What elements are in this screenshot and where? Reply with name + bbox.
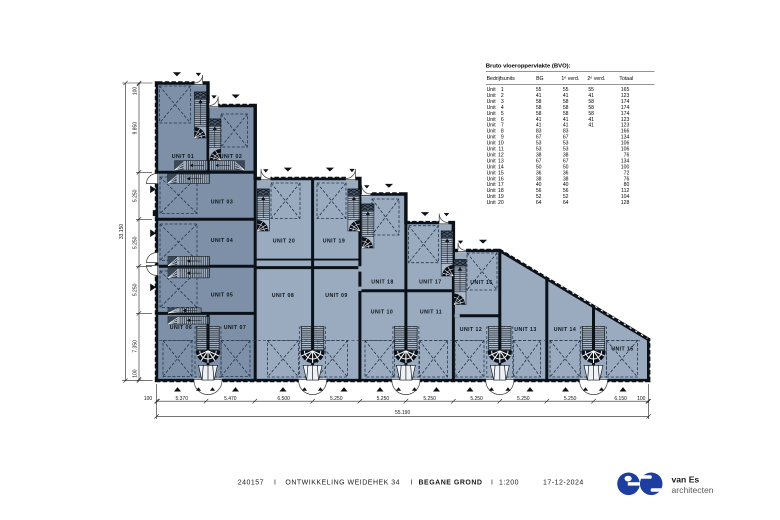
svg-text:100: 100 [637, 396, 646, 402]
svg-text:UNIT 01: UNIT 01 [172, 154, 194, 160]
svg-text:I: I [274, 479, 276, 486]
svg-text:Bruto vloeroppervlakte (BVO):: Bruto vloeroppervlakte (BVO): [486, 64, 571, 70]
svg-text:UNIT 19: UNIT 19 [323, 239, 345, 245]
svg-text:UNIT 04: UNIT 04 [211, 238, 233, 244]
svg-text:5.250: 5.250 [517, 396, 530, 402]
svg-text:240157: 240157 [238, 479, 264, 486]
svg-text:33.150: 33.150 [119, 224, 125, 240]
svg-text:5.250: 5.250 [564, 396, 577, 402]
svg-text:UNIT 20: UNIT 20 [273, 239, 295, 245]
svg-text:ONTWIKKELING WEIDEHEK 34: ONTWIKKELING WEIDEHEK 34 [285, 479, 400, 486]
svg-text:UNIT 18: UNIT 18 [371, 280, 393, 286]
svg-text:7.350: 7.350 [133, 340, 139, 353]
svg-text:1:200: 1:200 [499, 479, 519, 486]
svg-text:UNIT 09: UNIT 09 [325, 293, 347, 299]
svg-text:5.250: 5.250 [133, 236, 139, 249]
svg-text:UNIT 15: UNIT 15 [611, 346, 633, 352]
svg-text:UNIT 13: UNIT 13 [514, 327, 536, 333]
svg-text:64: 64 [536, 200, 542, 206]
svg-text:UNIT 06: UNIT 06 [170, 325, 192, 331]
svg-text:100: 100 [144, 396, 153, 402]
svg-text:5.250: 5.250 [377, 396, 390, 402]
svg-text:UNIT 16: UNIT 16 [470, 280, 492, 286]
svg-text:Bedrijfsunits: Bedrijfsunits [487, 76, 516, 82]
svg-text:UNIT 05: UNIT 05 [211, 293, 233, 299]
svg-text:UNIT 12: UNIT 12 [460, 327, 482, 333]
svg-text:UNIT 14: UNIT 14 [554, 327, 576, 333]
svg-text:UNIT 11: UNIT 11 [420, 310, 442, 316]
svg-text:UNIT 03: UNIT 03 [211, 200, 233, 206]
svg-text:Totaal: Totaal [619, 76, 633, 82]
svg-text:5.250: 5.250 [133, 283, 139, 296]
svg-text:UNIT 02: UNIT 02 [220, 154, 242, 160]
svg-text:5.250: 5.250 [470, 396, 483, 402]
svg-text:6.150: 6.150 [614, 396, 627, 402]
svg-text:41: 41 [588, 123, 594, 129]
svg-text:I: I [491, 479, 493, 486]
svg-text:architecten: architecten [672, 485, 714, 495]
svg-text:5.370: 5.370 [175, 396, 188, 402]
svg-text:van Es: van Es [672, 475, 700, 485]
svg-text:128: 128 [621, 200, 630, 206]
svg-text:I: I [411, 479, 413, 486]
svg-text:64: 64 [563, 200, 569, 206]
svg-text:BG: BG [536, 76, 544, 82]
svg-text:5.250: 5.250 [423, 396, 436, 402]
svg-text:1e verd.: 1e verd. [561, 76, 579, 82]
svg-text:6.500: 6.500 [277, 396, 290, 402]
svg-text:BEGANE GROND: BEGANE GROND [419, 479, 483, 486]
svg-text:UNIT 17: UNIT 17 [419, 280, 441, 286]
svg-text:20: 20 [498, 200, 504, 206]
svg-text:9.850: 9.850 [133, 122, 139, 135]
svg-text:17-12-2024: 17-12-2024 [543, 479, 584, 486]
svg-text:100: 100 [133, 369, 139, 378]
svg-text:100: 100 [133, 87, 139, 96]
svg-text:UNIT 07: UNIT 07 [224, 325, 246, 331]
svg-text:55.190: 55.190 [395, 410, 411, 416]
svg-text:2e verd.: 2e verd. [587, 76, 605, 82]
svg-text:5.470: 5.470 [224, 396, 237, 402]
svg-text:Unit: Unit [487, 200, 497, 206]
svg-text:UNIT 10: UNIT 10 [371, 310, 393, 316]
svg-text:5.250: 5.250 [133, 189, 139, 202]
svg-text:UNIT 08: UNIT 08 [272, 293, 294, 299]
svg-text:5.250: 5.250 [330, 396, 343, 402]
